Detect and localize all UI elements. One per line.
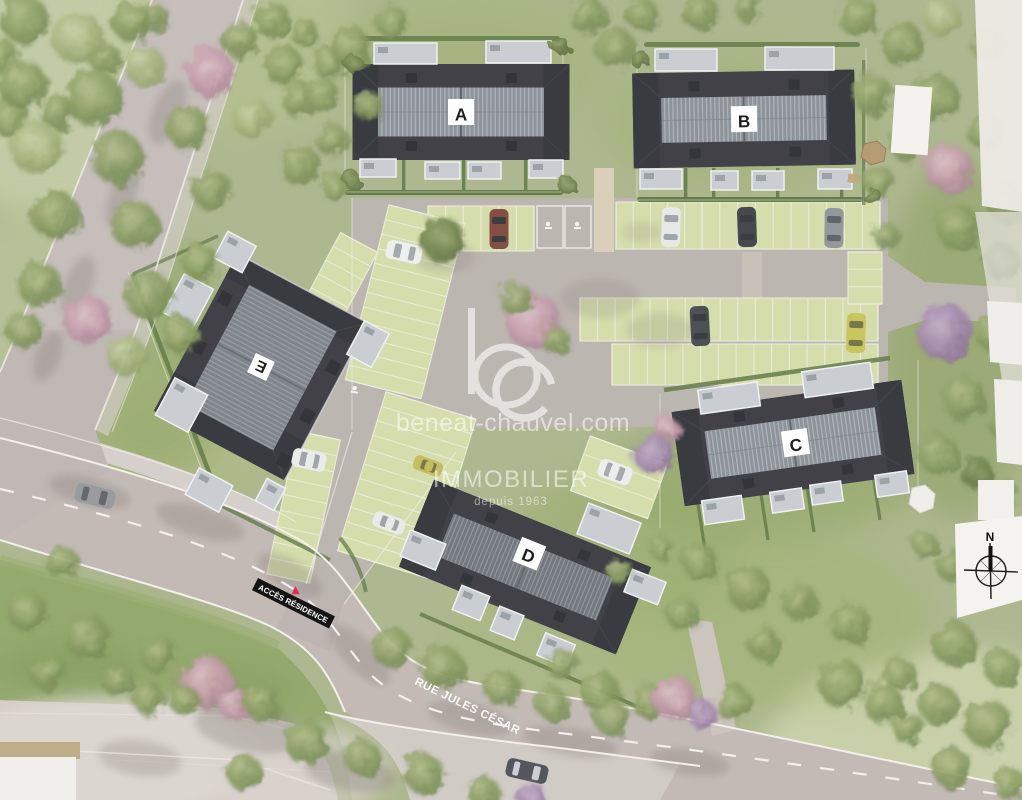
- svg-text:N: N: [986, 530, 995, 544]
- svg-text:beneat-chauvel.com: beneat-chauvel.com: [396, 409, 630, 437]
- svg-text:depuis 1963: depuis 1963: [474, 496, 548, 508]
- svg-text:IMMOBILIER: IMMOBILIER: [433, 466, 589, 493]
